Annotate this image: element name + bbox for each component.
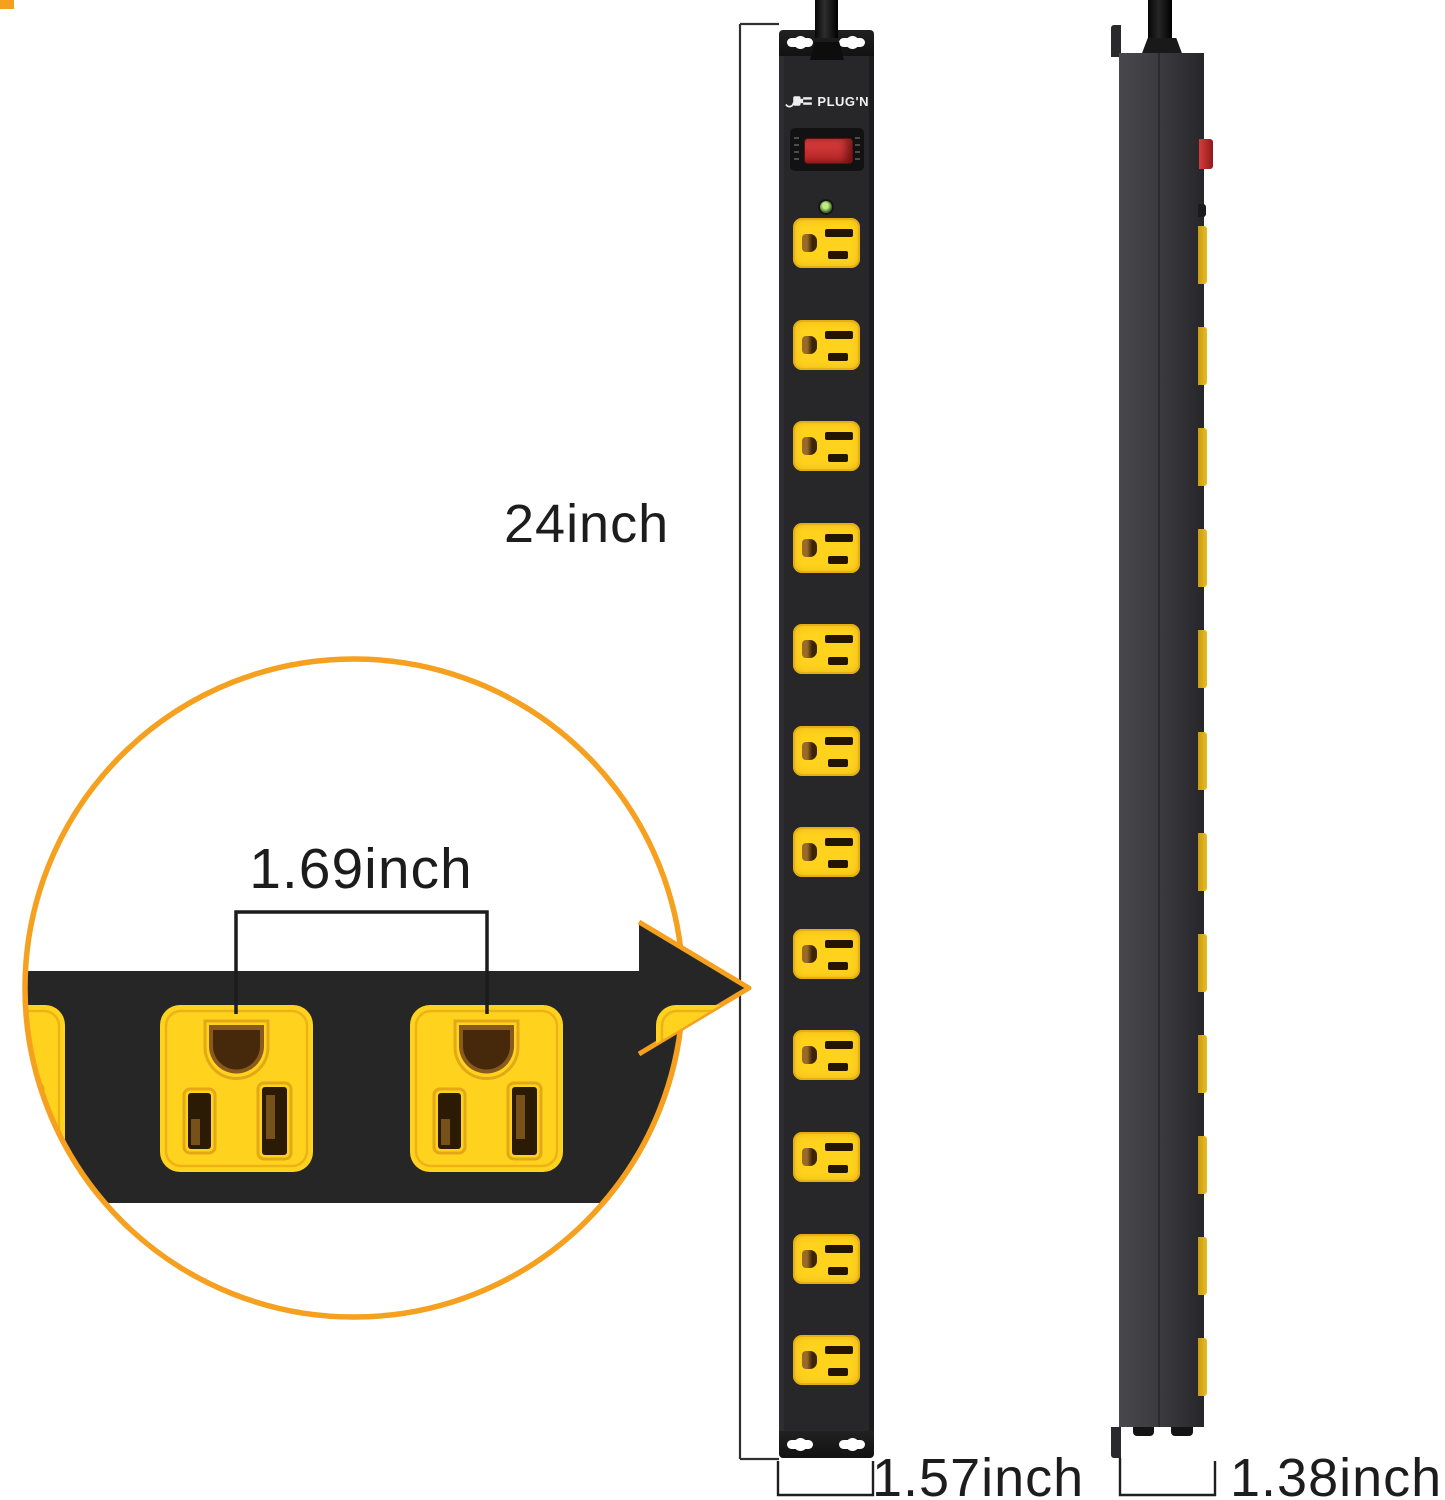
side-outlet-edge: [1198, 934, 1207, 992]
front-outlet: [793, 929, 860, 979]
side-outlet-edge: [1198, 630, 1207, 688]
hot-slot: [828, 353, 848, 361]
front-outlet: [793, 827, 860, 877]
power-strip-side-body: [1119, 53, 1204, 1427]
brand-name: PLUG'N: [817, 94, 869, 109]
power-cord-front: [815, 0, 838, 38]
hot-slot: [828, 657, 848, 665]
hot-slot: [828, 1063, 848, 1071]
hot-slot: [828, 251, 848, 259]
front-outlet: [793, 1030, 860, 1080]
side-outlet-edge: [1198, 1136, 1207, 1194]
depth-dimension-bracket: [1117, 1455, 1221, 1500]
hot-slot: [828, 962, 848, 970]
front-outlet: [793, 726, 860, 776]
cord-strain-relief: [810, 42, 844, 60]
ground-hole: [802, 1250, 817, 1268]
side-foot: [1133, 1427, 1154, 1436]
hot-slot: [828, 860, 848, 868]
neutral-slot: [825, 1245, 853, 1253]
ground-hole: [802, 1148, 817, 1166]
hot-slot: [828, 556, 848, 564]
hot-slot: [828, 1165, 848, 1173]
callout-strip-band: [0, 971, 687, 1203]
mounting-bracket-bottom: [779, 1431, 874, 1458]
neutral-slot: [825, 331, 853, 339]
side-outlet-edge: [1198, 1338, 1207, 1396]
front-outlet: [793, 218, 860, 268]
height-dimension-label: 24inch: [504, 497, 669, 551]
front-outlet: [793, 1234, 860, 1284]
front-outlet: [793, 1132, 860, 1182]
keyhole-slot: [839, 1440, 865, 1449]
ground-hole: [802, 843, 817, 861]
plug-icon: [785, 92, 814, 110]
front-outlet: [793, 1335, 860, 1385]
side-outlet-edge: [1198, 226, 1207, 284]
side-outlet-edge: [1198, 833, 1207, 891]
outlet-spacing-callout: 1.69inch: [0, 615, 775, 1340]
side-foot: [1171, 1427, 1193, 1436]
switch-rocker: [804, 138, 853, 164]
front-outlet: [793, 624, 860, 674]
side-outlet-edge: [1198, 732, 1207, 790]
side-panel-seam: [1158, 53, 1160, 1427]
ground-hole: [802, 1351, 817, 1369]
power-switch: [790, 128, 864, 171]
neutral-slot: [825, 1143, 853, 1151]
ground-hole: [802, 539, 817, 557]
neutral-slot: [825, 737, 853, 745]
neutral-slot: [825, 432, 853, 440]
keyhole-slot: [787, 1440, 813, 1449]
switch-marking: [794, 137, 799, 162]
side-outlet-edge: [1198, 327, 1207, 385]
ground-hole: [802, 437, 817, 455]
neutral-slot: [825, 1041, 853, 1049]
width-dimension-label: 1.57inch: [872, 1451, 1084, 1500]
neutral-slot: [825, 940, 853, 948]
switch-marking: [855, 137, 860, 162]
hot-slot: [828, 1368, 848, 1376]
power-led: [820, 201, 832, 213]
neutral-slot: [825, 229, 853, 237]
neutral-slot: [825, 838, 853, 846]
side-bracket-bottom: [1111, 1427, 1121, 1458]
spacing-dimension-label: 1.69inch: [249, 837, 473, 901]
front-outlet: [793, 523, 860, 573]
ground-hole: [802, 742, 817, 760]
front-outlet: [793, 421, 860, 471]
ground-hole: [802, 640, 817, 658]
keyhole-slot: [839, 38, 865, 47]
keyhole-slot: [787, 38, 813, 47]
hot-slot: [828, 454, 848, 462]
side-outlet-edge: [1198, 428, 1207, 486]
side-outlet-edge: [1198, 1237, 1207, 1295]
hot-slot: [828, 759, 848, 767]
product-dimension-diagram: PLUG'N: [0, 0, 1445, 1500]
front-outlet: [793, 320, 860, 370]
side-outlet-edge: [1198, 529, 1207, 587]
depth-dimension-label: 1.38inch: [1230, 1451, 1442, 1500]
outlet-magnified-2: [410, 1005, 563, 1172]
outlet-partial-right: [656, 1005, 775, 1172]
width-dimension-bracket: [775, 1458, 879, 1500]
side-outlet-edge: [1198, 1035, 1207, 1093]
outlet-magnified-1: [160, 1005, 313, 1172]
side-led-nub: [1198, 204, 1206, 217]
ground-hole: [802, 1046, 817, 1064]
ground-hole: [802, 945, 817, 963]
neutral-slot: [825, 534, 853, 542]
hot-slot: [828, 1267, 848, 1275]
neutral-slot: [825, 635, 853, 643]
side-power-switch: [1199, 139, 1213, 169]
callout-pointer-tip: [639, 922, 749, 1054]
power-cord-side: [1148, 0, 1172, 42]
corner-artifact: [0, 0, 14, 9]
neutral-slot: [825, 1346, 853, 1354]
outlet-partial-left: [0, 1005, 65, 1172]
ground-hole: [802, 336, 817, 354]
brand-logo: PLUG'N: [785, 88, 869, 114]
ground-hole: [802, 234, 817, 252]
